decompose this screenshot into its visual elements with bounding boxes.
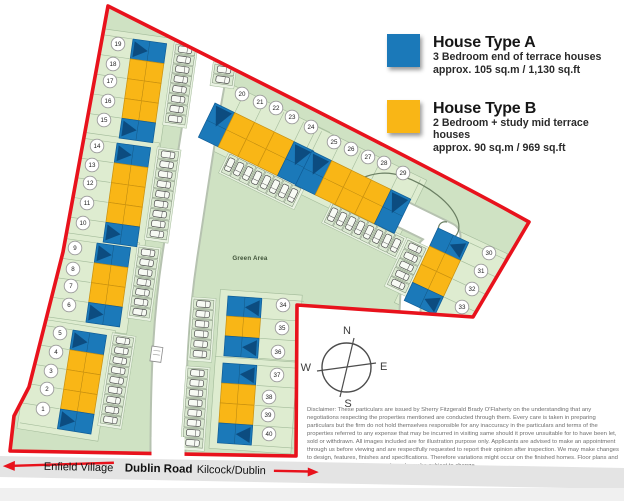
- car-icon: [170, 105, 184, 113]
- plot-number-31: 31: [474, 264, 488, 278]
- plot-number-10: 10: [76, 216, 90, 230]
- svg-text:30: 30: [486, 250, 493, 257]
- plot-number-2: 2: [40, 382, 54, 396]
- svg-text:15: 15: [101, 117, 108, 124]
- legend-item-type-a: House Type A 3 Bedroom end of terrace ho…: [387, 34, 617, 77]
- car-icon: [158, 170, 172, 178]
- type-b-swatch: [387, 100, 420, 133]
- type-a-swatch: [387, 34, 420, 67]
- terrace-block-37-40: [217, 363, 256, 445]
- svg-text:13: 13: [89, 162, 96, 169]
- legend-desc: 2 Bedroom + study mid terrace houses: [433, 117, 617, 143]
- svg-text:21: 21: [257, 99, 264, 106]
- plot-number-16: 16: [101, 94, 115, 108]
- plot-number-27: 27: [361, 150, 375, 164]
- page-bottom-strip: [0, 488, 624, 501]
- compass-west-label: W: [301, 362, 312, 374]
- svg-text:27: 27: [365, 154, 372, 161]
- car-icon: [151, 220, 165, 228]
- car-icon: [157, 180, 171, 188]
- car-icon: [193, 350, 207, 357]
- plot-number-36: 36: [271, 345, 285, 359]
- svg-text:3: 3: [49, 368, 53, 375]
- car-icon: [186, 439, 200, 446]
- legend-title: House Type B: [433, 100, 617, 117]
- plot-number-12: 12: [83, 176, 97, 190]
- car-icon: [172, 85, 186, 93]
- car-icon: [161, 151, 175, 159]
- plot-number-1: 1: [36, 402, 50, 416]
- plot-number-4: 4: [49, 345, 63, 359]
- plot-number-7: 7: [64, 279, 78, 293]
- terrace-block-34-36: [224, 296, 262, 358]
- compass: N S W E: [301, 325, 388, 410]
- svg-text:36: 36: [275, 349, 282, 356]
- plot-number-25: 25: [327, 135, 341, 149]
- plot-number-15: 15: [97, 113, 111, 127]
- plot-number-30: 30: [482, 246, 496, 260]
- car-icon: [174, 75, 188, 83]
- plot-number-22: 22: [269, 101, 283, 115]
- legend-desc: 3 Bedroom end of terrace houses: [433, 51, 601, 64]
- car-icon: [186, 429, 200, 436]
- car-icon: [195, 320, 209, 327]
- svg-text:7: 7: [69, 283, 73, 290]
- plot-number-18: 18: [106, 57, 120, 71]
- svg-text:32: 32: [469, 286, 476, 293]
- car-icon: [177, 56, 191, 64]
- car-icon: [190, 369, 204, 376]
- car-icon: [138, 268, 152, 276]
- plot-number-38: 38: [262, 390, 276, 404]
- arrow-right-icon: [274, 466, 320, 477]
- utility-structure: [150, 346, 163, 362]
- compass-north-label: N: [343, 325, 351, 337]
- car-icon: [175, 65, 189, 73]
- svg-text:37: 37: [274, 372, 281, 379]
- svg-text:35: 35: [279, 325, 286, 332]
- svg-text:5: 5: [58, 330, 62, 337]
- svg-text:18: 18: [110, 61, 117, 68]
- plot-number-32: 32: [465, 282, 479, 296]
- plot-number-40: 40: [262, 427, 276, 441]
- plot-number-26: 26: [344, 142, 358, 156]
- legend-size: approx. 105 sq.m / 1,130 sq.ft: [433, 64, 601, 77]
- svg-text:40: 40: [266, 431, 273, 438]
- plot-number-3: 3: [44, 364, 58, 378]
- svg-text:20: 20: [239, 91, 246, 98]
- car-icon: [189, 389, 203, 396]
- car-icon: [190, 379, 204, 386]
- car-icon: [134, 298, 148, 306]
- car-icon: [137, 278, 151, 286]
- car-icon: [187, 419, 201, 426]
- svg-text:4: 4: [54, 349, 58, 356]
- plot-number-13: 13: [85, 158, 99, 172]
- plot-number-23: 23: [285, 110, 299, 124]
- svg-text:19: 19: [115, 41, 122, 48]
- car-icon: [155, 190, 169, 198]
- car-icon: [153, 210, 167, 218]
- plot-number-11: 11: [80, 196, 94, 210]
- road-label-dublin-road: Dublin Road: [125, 462, 193, 475]
- svg-text:12: 12: [87, 180, 94, 187]
- car-icon: [154, 200, 168, 208]
- plot-number-21: 21: [253, 95, 267, 109]
- legend-title: House Type A: [433, 34, 601, 51]
- car-icon: [188, 409, 202, 416]
- svg-text:25: 25: [331, 139, 338, 146]
- plot-number-19: 19: [111, 37, 125, 51]
- svg-text:1: 1: [41, 406, 45, 413]
- legend: House Type A 3 Bedroom end of terrace ho…: [387, 34, 617, 178]
- car-icon: [196, 300, 210, 307]
- car-icon: [188, 399, 202, 406]
- car-icon: [141, 249, 155, 257]
- car-icon: [194, 330, 208, 337]
- svg-text:11: 11: [84, 200, 91, 207]
- plot-number-20: 20: [235, 87, 249, 101]
- disclaimer-text: Disclaimer: These particulars are issued…: [307, 406, 623, 470]
- svg-text:10: 10: [80, 220, 87, 227]
- plot-number-5: 5: [53, 326, 67, 340]
- car-icon: [168, 115, 182, 123]
- car-icon: [196, 310, 210, 317]
- svg-text:22: 22: [273, 105, 280, 112]
- svg-text:2: 2: [45, 386, 49, 393]
- site-plan-page: 1234567891011121314151617181920212223242…: [0, 0, 624, 501]
- svg-text:34: 34: [280, 302, 287, 309]
- svg-text:17: 17: [107, 78, 114, 85]
- plot-number-8: 8: [66, 262, 80, 276]
- car-icon: [160, 161, 174, 169]
- svg-text:26: 26: [348, 146, 355, 153]
- plot-number-6: 6: [62, 298, 76, 312]
- legend-item-type-b: House Type B 2 Bedroom + study mid terra…: [387, 100, 617, 155]
- svg-text:24: 24: [308, 124, 315, 131]
- svg-text:33: 33: [459, 304, 466, 311]
- plot-number-39: 39: [261, 408, 275, 422]
- car-icon: [133, 308, 147, 316]
- road-label-enfield-village: Enfield Village: [44, 461, 114, 474]
- svg-text:6: 6: [67, 302, 71, 309]
- plot-number-9: 9: [68, 241, 82, 255]
- svg-text:31: 31: [478, 268, 485, 275]
- svg-text:38: 38: [266, 394, 273, 401]
- car-icon: [135, 288, 149, 296]
- plot-number-35: 35: [275, 321, 289, 335]
- plot-number-14: 14: [90, 139, 104, 153]
- green-area-label: Green Area: [232, 255, 267, 262]
- svg-text:9: 9: [73, 245, 77, 252]
- svg-text:39: 39: [265, 412, 272, 419]
- svg-text:14: 14: [94, 143, 101, 150]
- car-icon: [194, 340, 208, 347]
- plot-number-34: 34: [276, 298, 290, 312]
- car-icon: [150, 230, 164, 238]
- svg-text:23: 23: [289, 114, 296, 121]
- car-icon: [216, 76, 230, 84]
- svg-text:8: 8: [71, 266, 75, 273]
- legend-size: approx. 90 sq.m / 969 sq.ft: [433, 142, 617, 155]
- parking-row: [188, 297, 216, 363]
- compass-east-label: E: [380, 361, 387, 373]
- car-icon: [140, 259, 154, 267]
- plot-number-24: 24: [304, 120, 318, 134]
- plot-number-17: 17: [103, 74, 117, 88]
- plot-number-33: 33: [455, 300, 469, 314]
- svg-text:16: 16: [105, 98, 112, 105]
- plot-number-37: 37: [270, 368, 284, 382]
- car-icon: [171, 95, 185, 103]
- road-label-kilcock-dublin: Kilcock/Dublin: [197, 464, 266, 477]
